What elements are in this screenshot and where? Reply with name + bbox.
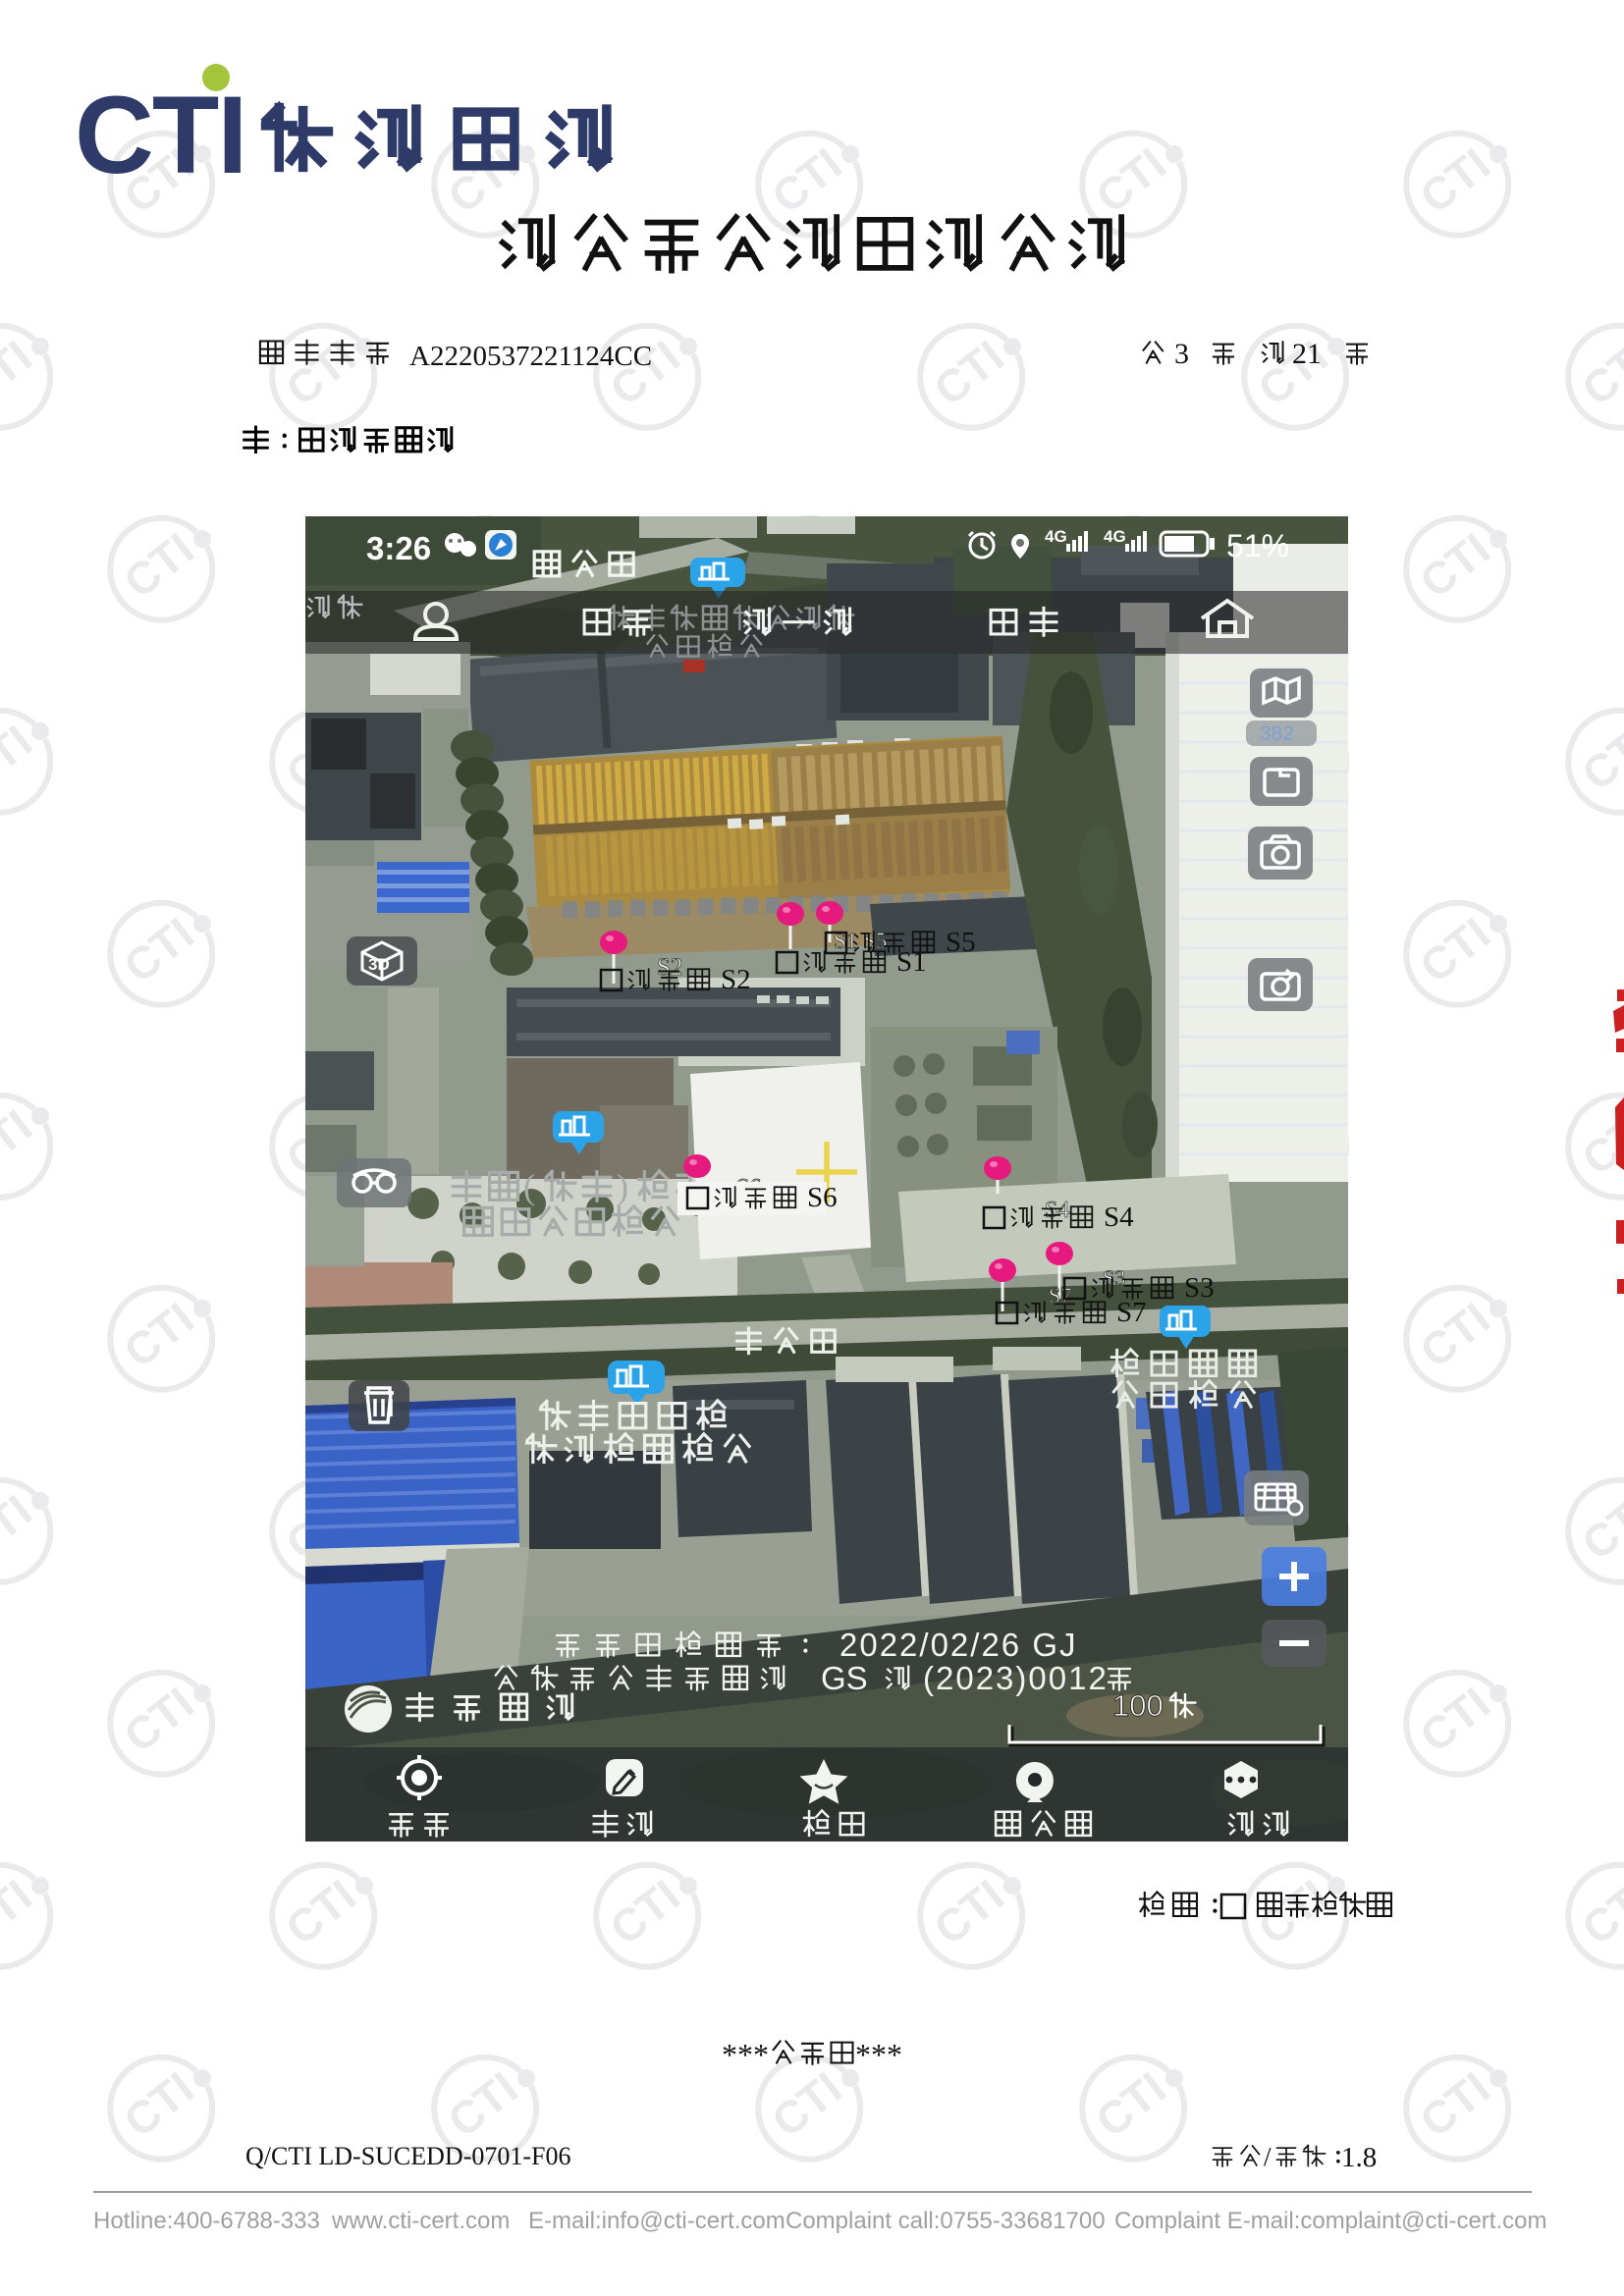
svg-text:***: *** bbox=[722, 2037, 769, 2072]
svg-text:CTI: CTI bbox=[75, 74, 245, 196]
svg-text:21: 21 bbox=[1292, 338, 1322, 370]
svg-text:S3: S3 bbox=[1184, 1272, 1215, 1304]
svg-text:www.cti-cert.com: www.cti-cert.com bbox=[331, 2208, 510, 2234]
svg-text:A2220537221124CC: A2220537221124CC bbox=[409, 341, 652, 372]
svg-text:S4: S4 bbox=[1045, 1198, 1069, 1223]
svg-text:S4: S4 bbox=[1104, 1201, 1134, 1233]
svg-text:/: / bbox=[1264, 2142, 1272, 2171]
svg-text:382: 382 bbox=[1260, 722, 1294, 745]
svg-text:3:26: 3:26 bbox=[366, 530, 431, 566]
svg-text:E-mail:info@cti-cert.com: E-mail:info@cti-cert.com bbox=[528, 2208, 785, 2234]
svg-text:1.8: 1.8 bbox=[1341, 2142, 1377, 2173]
svg-text:S5: S5 bbox=[946, 927, 976, 958]
svg-text:***: *** bbox=[855, 2037, 902, 2072]
svg-text:S3: S3 bbox=[1103, 1265, 1125, 1290]
svg-text:): ) bbox=[617, 1167, 628, 1206]
svg-text:2022/02/26 GJ: 2022/02/26 GJ bbox=[839, 1627, 1078, 1663]
svg-text:Hotline:400-6788-333: Hotline:400-6788-333 bbox=[93, 2208, 320, 2234]
svg-text:4G: 4G bbox=[1104, 527, 1126, 546]
svg-text:(2023)0012: (2023)0012 bbox=[923, 1660, 1109, 1696]
svg-text:4G: 4G bbox=[1045, 527, 1067, 546]
svg-text:S1: S1 bbox=[896, 946, 927, 978]
svg-text:S2: S2 bbox=[721, 964, 751, 995]
svg-text:S7: S7 bbox=[1116, 1297, 1147, 1328]
svg-text:(: ( bbox=[523, 1167, 535, 1206]
svg-text:GS: GS bbox=[821, 1660, 868, 1696]
svg-text:51%: 51% bbox=[1226, 528, 1289, 563]
svg-text:Complaint E-mail:complaint@cti: Complaint E-mail:complaint@cti-cert.com bbox=[1114, 2208, 1546, 2234]
svg-text:100: 100 bbox=[1112, 1688, 1164, 1723]
svg-text:S6: S6 bbox=[807, 1182, 838, 1213]
svg-text:Complaint call:0755-33681700: Complaint call:0755-33681700 bbox=[785, 2208, 1106, 2234]
svg-text:3D: 3D bbox=[368, 955, 390, 974]
svg-text:Q/CTI LD-SUCEDD-0701-F06: Q/CTI LD-SUCEDD-0701-F06 bbox=[245, 2142, 571, 2170]
svg-text:3: 3 bbox=[1174, 338, 1189, 370]
